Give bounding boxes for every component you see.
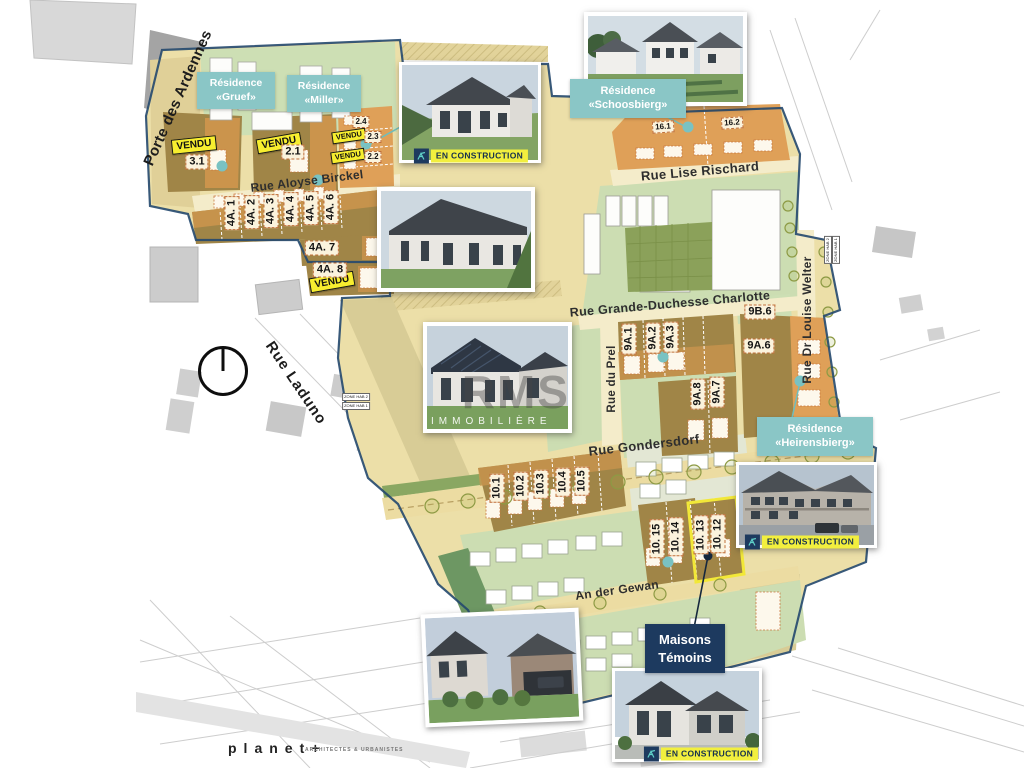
lot-10-12: 10. 12	[711, 515, 726, 554]
en-construction-badge-heirensbierg: EN CONSTRUCTION	[745, 535, 859, 550]
en-construction-label: EN CONSTRUCTION	[431, 150, 528, 163]
en-construction-label: EN CONSTRUCTION	[762, 536, 859, 549]
site-plan-page: RMS IMMOBILIÈRE	[0, 0, 1024, 768]
north-symbol	[198, 346, 248, 396]
lot-10-14: 10. 14	[669, 518, 684, 557]
maisons-temoins-label: Maisons Témoins	[645, 624, 725, 673]
residence-miller-line2: «Miller»	[304, 94, 343, 106]
residence-heirensbierg-line2: «Heirensbierg»	[775, 437, 854, 449]
residence-schoosbierg-line1: Résidence	[600, 85, 655, 97]
construction-logo-icon	[414, 149, 429, 164]
residence-schoosbierg-label: Résidence «Schoosbierg»	[570, 79, 686, 118]
lot-4a-1: 4A. 1	[225, 196, 240, 230]
lot-2-4: 2.4	[352, 116, 369, 128]
zone-hab-2-tag-east: ZONE HAB 2	[824, 236, 832, 264]
lot-10-5: 10.5	[575, 466, 590, 495]
zone-hab-1-tag-east: ZONE HAB 1	[832, 236, 840, 264]
lot-4a-8: 4A. 8	[313, 263, 347, 278]
lot-2-3: 2.3	[364, 131, 381, 143]
construction-logo-icon	[745, 535, 760, 550]
zone-hab-1-tag: ZONE HAB 1	[342, 402, 370, 410]
lot-9a-3: 9A.3	[664, 321, 679, 352]
lot-10-1: 10.1	[490, 473, 505, 502]
residence-gruef-label: Résidence «Gruef»	[197, 72, 275, 109]
lot-16-2: 16.2	[721, 116, 743, 129]
photo-house-center: RMS IMMOBILIÈRE	[423, 322, 572, 433]
residence-heirensbierg-line1: Résidence	[787, 423, 842, 435]
lot-10-2: 10.2	[514, 471, 529, 500]
lot-10-13: 10. 13	[694, 516, 709, 555]
residence-gruef-line1: Résidence	[210, 77, 263, 89]
lot-4a-7: 4A. 7	[305, 241, 339, 256]
lot-4a-2: 4A. 2	[245, 195, 260, 229]
photo-bottom-left	[421, 608, 584, 728]
lot-4a-3: 4A. 3	[264, 194, 279, 228]
en-construction-label: EN CONSTRUCTION	[661, 748, 758, 761]
lot-3-1: 3.1	[185, 155, 208, 170]
en-construction-badge-top: EN CONSTRUCTION	[414, 149, 528, 164]
lot-4a-4: 4A. 4	[284, 192, 299, 226]
lot-2-1: 2.1	[281, 145, 304, 160]
lot-9a-8: 9A.8	[691, 378, 706, 409]
lot-9a-7: 9A.7	[710, 376, 725, 407]
lot-4a-5: 4A. 5	[304, 191, 319, 225]
lot-4a-6: 4A. 6	[324, 190, 339, 224]
lot-2-2: 2.2	[364, 151, 381, 163]
residence-miller-line1: Résidence	[298, 80, 351, 92]
lot-10-3: 10.3	[534, 469, 549, 498]
lot-9a-6: 9A.6	[743, 339, 774, 354]
lot-9a-2: 9A.2	[646, 322, 661, 353]
residence-gruef-line2: «Gruef»	[216, 91, 256, 103]
maisons-temoins-line1: Maisons	[659, 632, 711, 647]
en-construction-badge-bottom: EN CONSTRUCTION	[644, 747, 758, 762]
lot-9a-1: 9A.1	[622, 323, 637, 354]
lot-10-15: 10. 15	[650, 520, 665, 559]
construction-logo-icon	[644, 747, 659, 762]
photo-row-houses	[377, 187, 535, 292]
architect-tagline: ARCHITECTES & URBANISTES	[305, 747, 403, 753]
lot-10-4: 10.4	[556, 467, 571, 496]
residence-miller-label: Résidence «Miller»	[287, 75, 361, 112]
residence-heirensbierg-label: Résidence «Heirensbierg»	[757, 417, 873, 456]
lot-9b-6: 9B.6	[744, 305, 775, 320]
residence-schoosbierg-line2: «Schoosbierg»	[589, 99, 668, 111]
lot-16-1: 16.1	[652, 120, 674, 133]
street-rue-dr-louise-welter: Rue Dr Louise Welter	[800, 256, 814, 383]
maisons-temoins-line2: Témoins	[658, 650, 711, 665]
street-rue-du-prel: Rue du Prel	[606, 345, 618, 412]
zone-hab-2-tag: ZONE HAB 2	[342, 393, 370, 401]
